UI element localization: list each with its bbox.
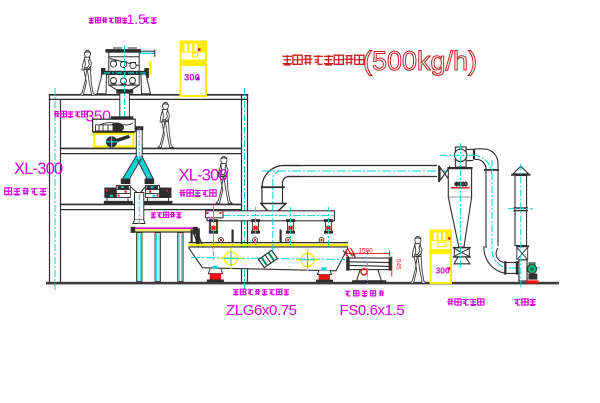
svg-text:ZLG6x0.75: ZLG6x0.75 — [226, 302, 297, 319]
svg-text:1500: 1500 — [359, 247, 374, 254]
svg-text:300: 300 — [436, 266, 450, 276]
svg-text:545: 545 — [395, 259, 402, 270]
svg-text:1.5: 1.5 — [127, 11, 147, 27]
svg-text:FS0.6x1.5: FS0.6x1.5 — [340, 302, 405, 319]
svg-text:XL-300: XL-300 — [179, 167, 228, 185]
svg-text:XL-300: XL-300 — [14, 160, 63, 178]
svg-text:(500kg/h): (500kg/h) — [363, 46, 477, 76]
svg-text:300: 300 — [184, 73, 200, 84]
